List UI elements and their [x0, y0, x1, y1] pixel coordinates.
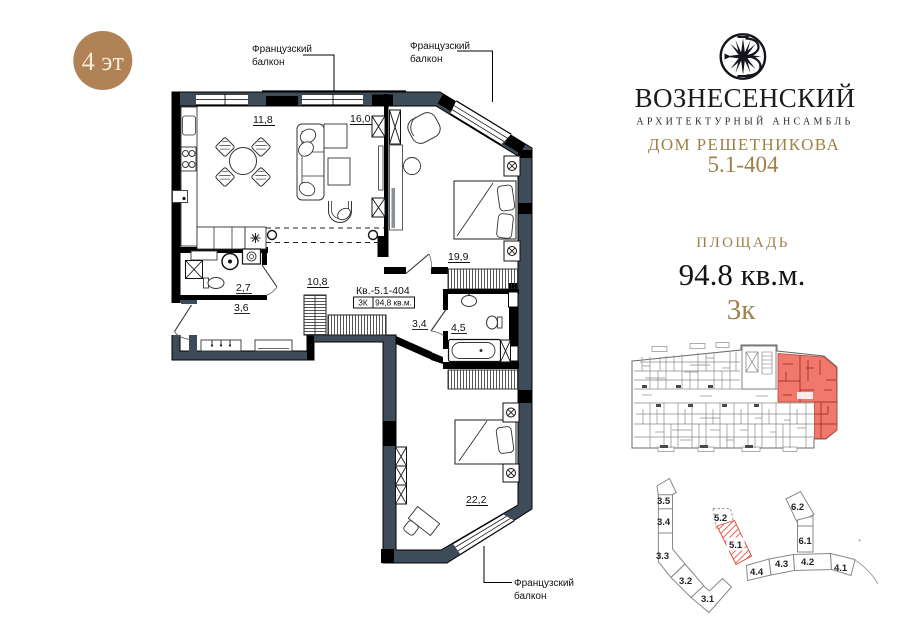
svg-text:2,7: 2,7 — [236, 282, 251, 294]
svg-text:16,0: 16,0 — [350, 113, 371, 125]
svg-text:94,8 кв.м.: 94,8 кв.м. — [375, 298, 412, 308]
svg-text:22,2: 22,2 — [466, 494, 487, 506]
svg-text:10,8: 10,8 — [307, 276, 328, 288]
svg-text:балкон: балкон — [410, 53, 442, 65]
svg-text:6.2: 6.2 — [791, 502, 804, 513]
svg-text:3К: 3К — [358, 298, 368, 308]
svg-text:АРХИТЕКТУРНЫЙ АНСАМБЛЬ: АРХИТЕКТУРНЫЙ АНСАМБЛЬ — [636, 116, 853, 128]
svg-text:3к: 3к — [727, 294, 757, 326]
svg-text:5.1: 5.1 — [729, 540, 743, 551]
svg-text:ВОЗНЕСЕНСКИЙ: ВОЗНЕСЕНСКИЙ — [635, 83, 856, 113]
svg-text:балкон: балкон — [514, 590, 546, 602]
svg-text:4.1: 4.1 — [834, 563, 848, 574]
svg-text:6.1: 6.1 — [799, 536, 813, 547]
svg-text:4.3: 4.3 — [775, 559, 788, 570]
svg-text:19,9: 19,9 — [448, 251, 469, 263]
svg-text:Французский: Французский — [514, 578, 574, 589]
svg-text:4,5: 4,5 — [451, 322, 466, 334]
svg-text:3.2: 3.2 — [679, 576, 692, 587]
svg-text:94.8 кв.м.: 94.8 кв.м. — [679, 257, 806, 292]
svg-text:3,6: 3,6 — [234, 302, 249, 314]
svg-text:3,4: 3,4 — [412, 318, 427, 330]
svg-text:11,8: 11,8 — [253, 114, 273, 126]
svg-text:Французский: Французский — [252, 44, 312, 55]
svg-text:3.5: 3.5 — [657, 496, 671, 507]
svg-text:4.2: 4.2 — [801, 557, 814, 568]
svg-text:4 эт: 4 эт — [82, 47, 124, 76]
svg-text:Французский: Французский — [410, 41, 470, 52]
svg-text:Кв.-5.1-404: Кв.-5.1-404 — [356, 285, 410, 297]
svg-text:5.1-404: 5.1-404 — [708, 152, 779, 177]
svg-text:ПЛОЩАДЬ: ПЛОЩАДЬ — [696, 235, 789, 251]
svg-text:балкон: балкон — [252, 56, 284, 68]
svg-text:5.2: 5.2 — [714, 513, 727, 524]
svg-text:3.3: 3.3 — [656, 551, 669, 562]
svg-text:3.4: 3.4 — [657, 517, 671, 528]
svg-text:4.4: 4.4 — [750, 567, 764, 578]
svg-text:3.1: 3.1 — [701, 594, 715, 605]
